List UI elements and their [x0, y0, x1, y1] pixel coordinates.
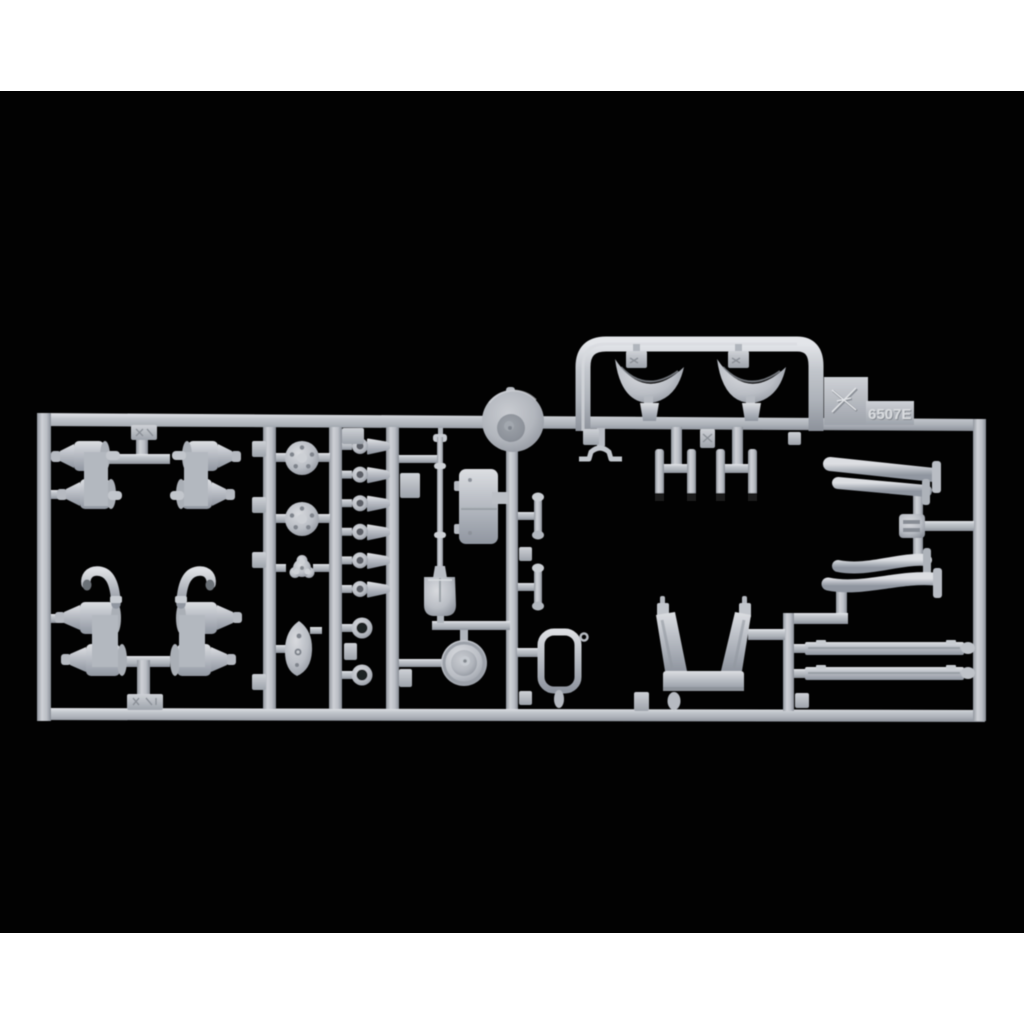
svg-text:6507E: 6507E [868, 406, 911, 423]
